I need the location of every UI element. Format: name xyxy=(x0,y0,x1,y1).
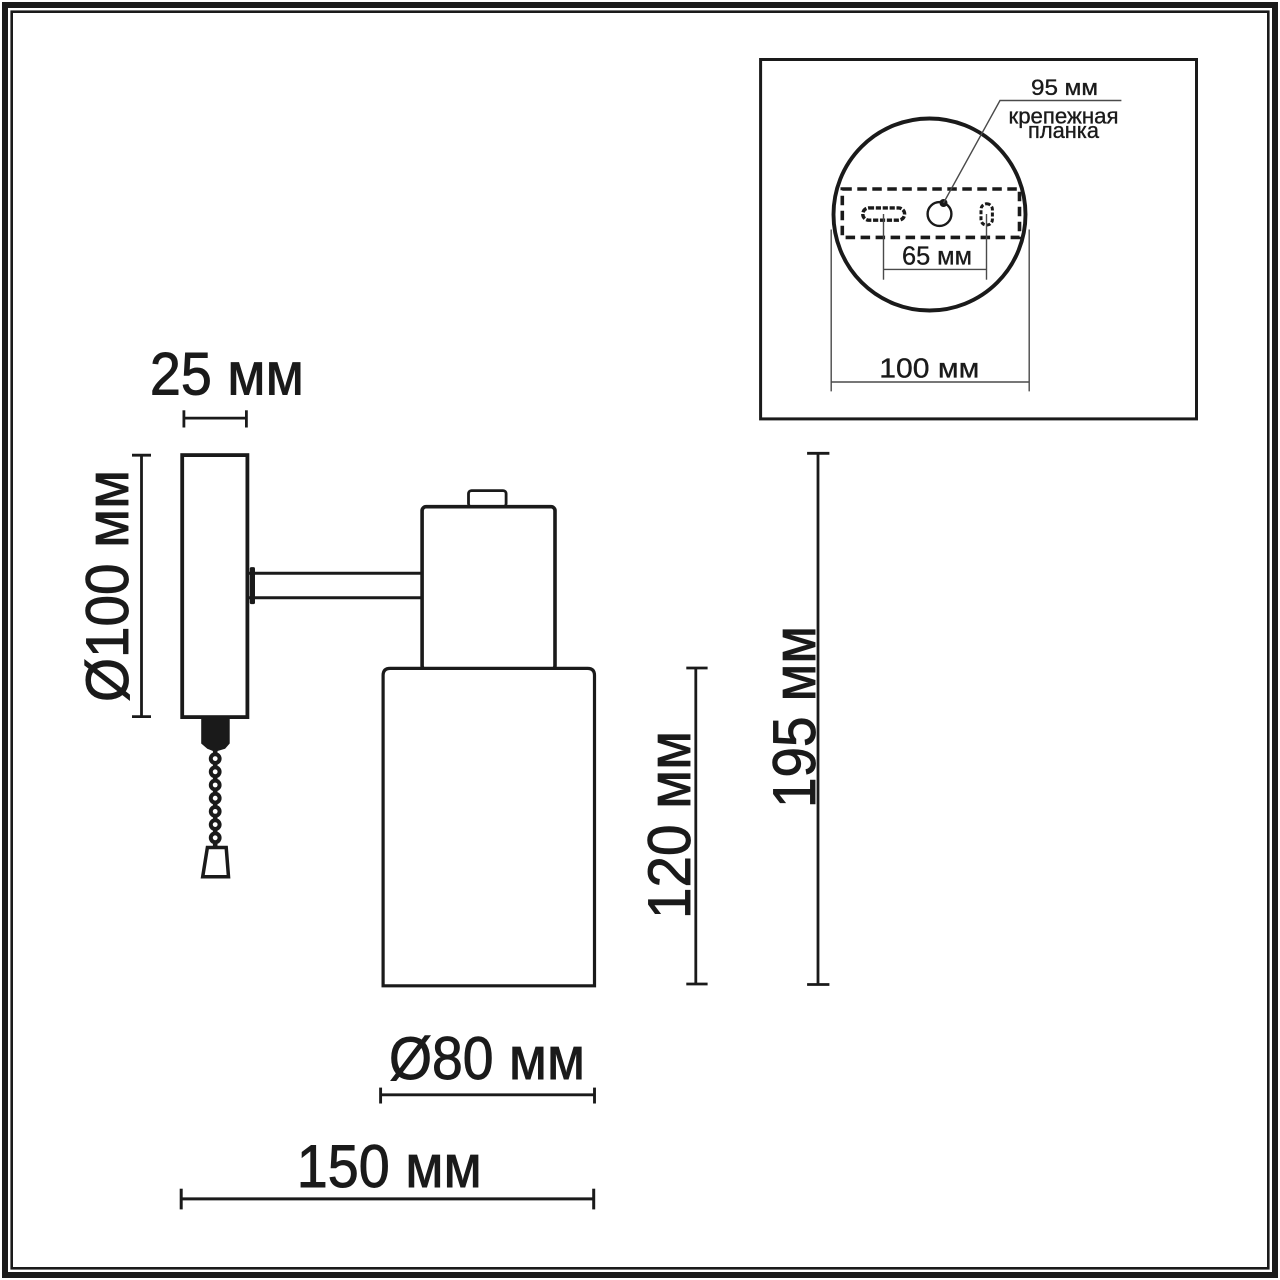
svg-text:100 мм: 100 мм xyxy=(879,353,979,384)
svg-text:планка: планка xyxy=(1028,118,1100,143)
svg-text:65 мм: 65 мм xyxy=(902,241,972,271)
svg-text:120 мм: 120 мм xyxy=(636,731,703,919)
svg-text:25 мм: 25 мм xyxy=(150,341,304,408)
svg-text:Ø100 мм: Ø100 мм xyxy=(74,470,141,702)
svg-text:150 мм: 150 мм xyxy=(297,1133,482,1200)
svg-text:95 мм: 95 мм xyxy=(1031,75,1098,100)
svg-text:Ø80 мм: Ø80 мм xyxy=(389,1025,585,1092)
